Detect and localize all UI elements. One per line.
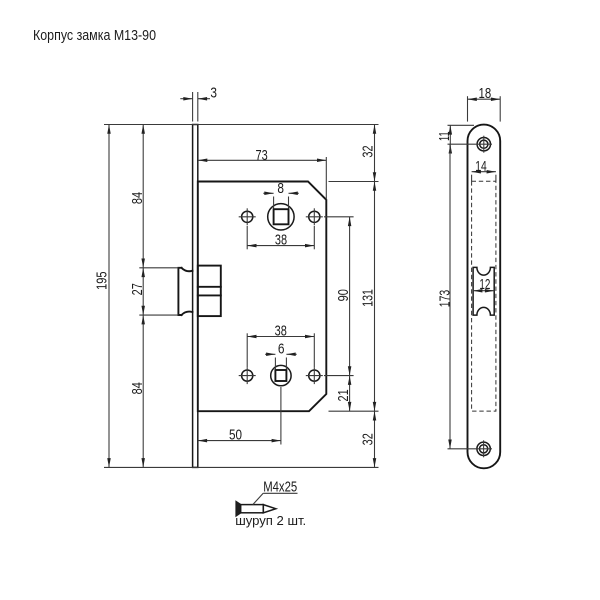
svg-text:21: 21 [335,389,352,401]
svg-text:27: 27 [129,283,146,295]
svg-text:84: 84 [129,382,146,394]
svg-text:84: 84 [129,192,146,204]
svg-text:12: 12 [479,276,490,293]
svg-text:32: 32 [360,145,377,157]
svg-text:шуруп 2 шт.: шуруп 2 шт. [235,513,306,528]
svg-text:Корпус замка М13-90: Корпус замка М13-90 [33,27,156,44]
svg-text:195: 195 [93,272,110,290]
svg-text:131: 131 [360,289,377,307]
svg-text:14: 14 [475,158,487,175]
svg-text:18: 18 [479,85,492,102]
svg-text:8: 8 [277,180,284,197]
svg-text:М4х25: М4х25 [263,479,297,496]
svg-text:38: 38 [275,232,287,249]
svg-text:6: 6 [278,341,285,358]
svg-text:173: 173 [437,290,454,307]
svg-text:73: 73 [256,147,268,164]
svg-text:90: 90 [335,289,352,301]
svg-text:38: 38 [275,322,287,339]
svg-text:50: 50 [229,426,242,443]
svg-text:3: 3 [210,84,217,101]
svg-text:11: 11 [436,131,453,141]
svg-text:32: 32 [360,433,377,445]
